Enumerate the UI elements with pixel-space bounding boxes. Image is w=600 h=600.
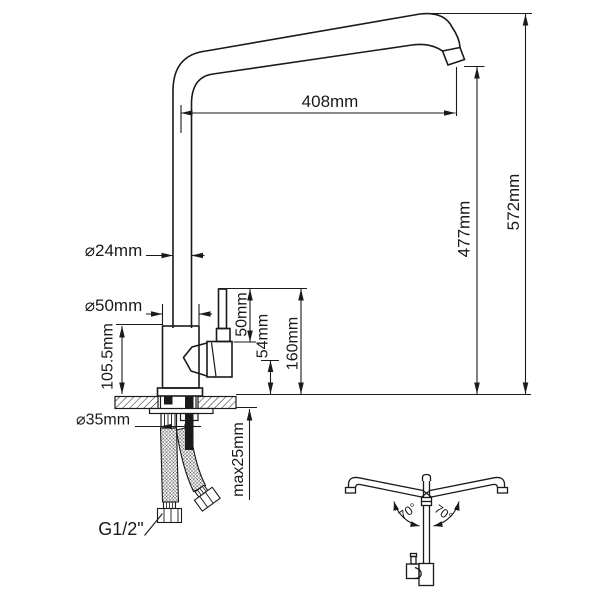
inset-right-wing — [430, 477, 508, 497]
spout-inner-line — [192, 44, 443, 328]
inset-swivel-view — [346, 475, 508, 586]
thread-leader — [145, 514, 163, 536]
hose-braid — [161, 428, 179, 502]
handle-rod-connector — [217, 329, 231, 342]
label-swivel-left: 70° — [396, 500, 420, 522]
countertop — [115, 397, 236, 409]
inset-pipe-cap — [423, 475, 431, 482]
inset-left-wing — [346, 477, 424, 497]
label-outlet-height: 477mm — [455, 201, 474, 258]
countertop-hatch-right — [198, 397, 236, 409]
inset-lever-cap — [411, 554, 417, 557]
inset-handle-notch — [415, 568, 421, 579]
handle-cone — [184, 343, 208, 376]
inset-right-wing-tip — [498, 488, 508, 494]
hose-stub-dark — [164, 397, 173, 405]
faucet-base-ring — [158, 388, 203, 396]
handle-face-line — [212, 343, 217, 377]
label-body-height: 105.5mm — [100, 323, 117, 390]
hose-crimp-ferrule — [161, 414, 177, 429]
supply-hose-angled — [177, 427, 221, 511]
label-thread-size: G1/2" — [98, 519, 143, 539]
supply-hose-straight — [158, 428, 182, 523]
label-pipe-diameter: ⌀24mm — [85, 241, 142, 260]
label-max-thickness: max25mm — [230, 422, 247, 497]
inset-wing-cross-2 — [422, 491, 431, 498]
label-overall-height: 572mm — [504, 174, 523, 231]
label-body-diameter: ⌀50mm — [85, 296, 142, 315]
inset-left-wing-tip — [346, 488, 356, 494]
inset-handle — [407, 564, 420, 579]
label-handle-height: 54mm — [255, 314, 272, 358]
faucet-body — [163, 326, 200, 388]
label-lever-length: 50mm — [234, 292, 251, 336]
handle-housing — [207, 342, 232, 378]
label-lever-top-height: 160mm — [285, 317, 302, 370]
technical-drawing-canvas: 408mm 477mm 572mm ⌀24mm ⌀50mm 105.5mm 50… — [0, 0, 600, 600]
inset-wing-cross-1 — [423, 491, 432, 498]
mounting-flange — [150, 409, 214, 414]
faucet-dimension-drawing: 408mm 477mm 572mm ⌀24mm ⌀50mm 105.5mm 50… — [0, 0, 600, 600]
spout-outer-line — [173, 14, 460, 328]
label-spout-reach: 408mm — [302, 92, 359, 111]
inset-lever-rod — [411, 557, 416, 565]
dimension-labels: 408mm 477mm 572mm ⌀24mm ⌀50mm 105.5mm 50… — [76, 92, 523, 539]
countertop-hatch-left — [115, 397, 158, 409]
label-hole-diameter: ⌀35mm — [76, 412, 130, 429]
label-swivel-right: 70° — [432, 502, 456, 524]
handle-lever-rod — [219, 289, 227, 329]
hose-braid-angled — [177, 427, 206, 492]
faucet-main-view — [158, 14, 465, 396]
spout-aerator-tip — [443, 48, 465, 66]
